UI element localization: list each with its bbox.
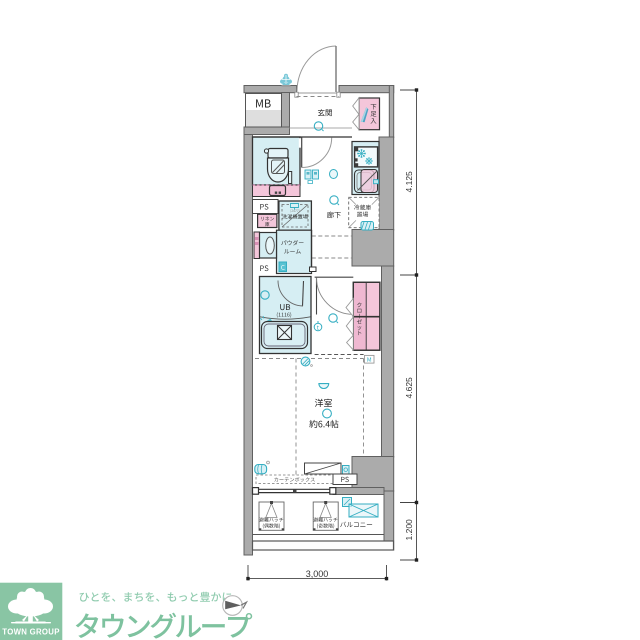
svg-text:1.200: 1.200	[404, 519, 414, 541]
svg-text:4.125: 4.125	[404, 171, 414, 193]
svg-text:3,000: 3,000	[306, 569, 329, 579]
svg-text:4.625: 4.625	[404, 377, 414, 399]
svg-text:TOWN GROUP: TOWN GROUP	[2, 628, 59, 637]
